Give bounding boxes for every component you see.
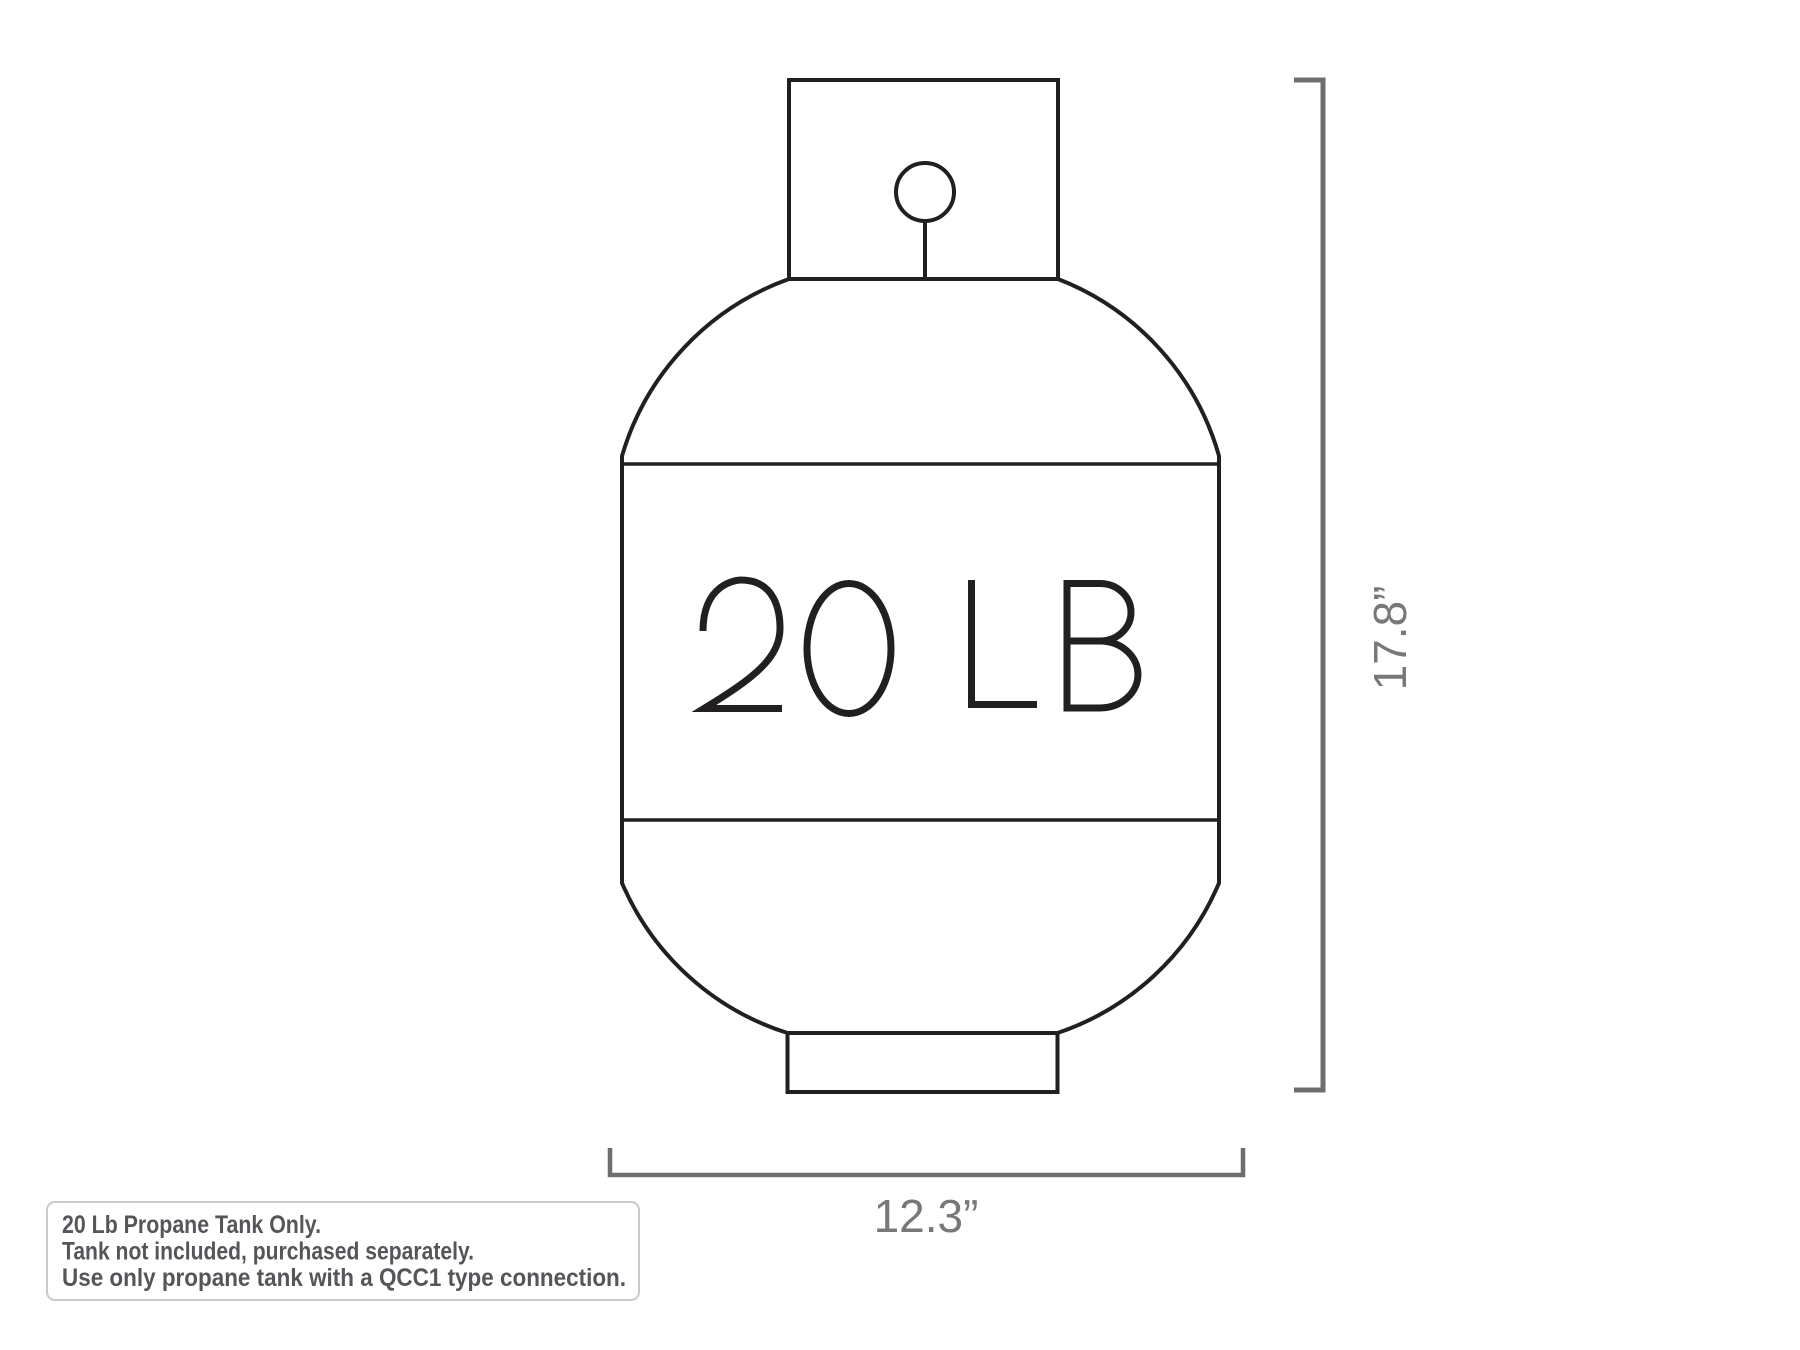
svg-text:17.8”: 17.8” bbox=[1364, 586, 1416, 691]
svg-text:Tank not included, purchased s: Tank not included, purchased separately. bbox=[62, 1238, 474, 1266]
svg-text:12.3”: 12.3” bbox=[874, 1190, 979, 1242]
svg-text:20 Lb Propane Tank Only.: 20 Lb Propane Tank Only. bbox=[62, 1211, 321, 1239]
svg-text:Use only propane tank with a Q: Use only propane tank with a QCC1 type c… bbox=[62, 1264, 626, 1292]
